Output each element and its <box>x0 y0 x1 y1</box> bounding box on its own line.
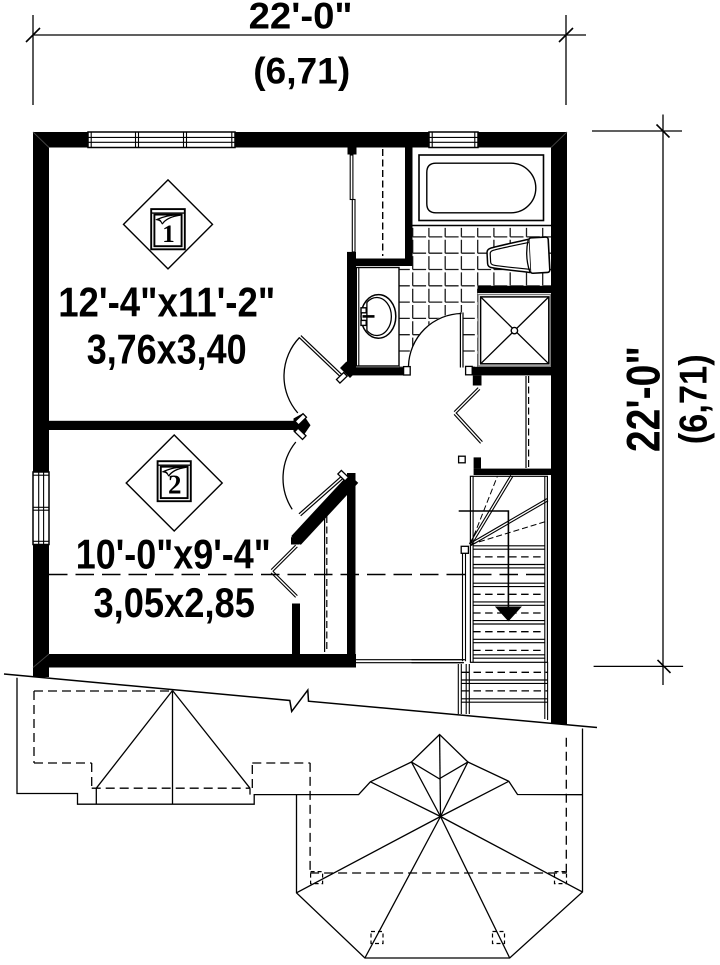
svg-text:1: 1 <box>162 221 175 248</box>
svg-text:22'-0": 22'-0" <box>249 0 353 37</box>
svg-text:12'-4"x11'-2": 12'-4"x11'-2" <box>58 279 275 326</box>
svg-text:3,05x2,85: 3,05x2,85 <box>93 579 255 626</box>
svg-text:3,76x3,40: 3,76x3,40 <box>87 325 247 372</box>
svg-text:22'-0": 22'-0" <box>617 346 670 452</box>
svg-text:(6,71): (6,71) <box>673 354 716 444</box>
svg-text:(6,71): (6,71) <box>253 50 350 92</box>
svg-text:2: 2 <box>168 470 182 500</box>
svg-text:10'-0"x9'-4": 10'-0"x9'-4" <box>76 530 271 577</box>
